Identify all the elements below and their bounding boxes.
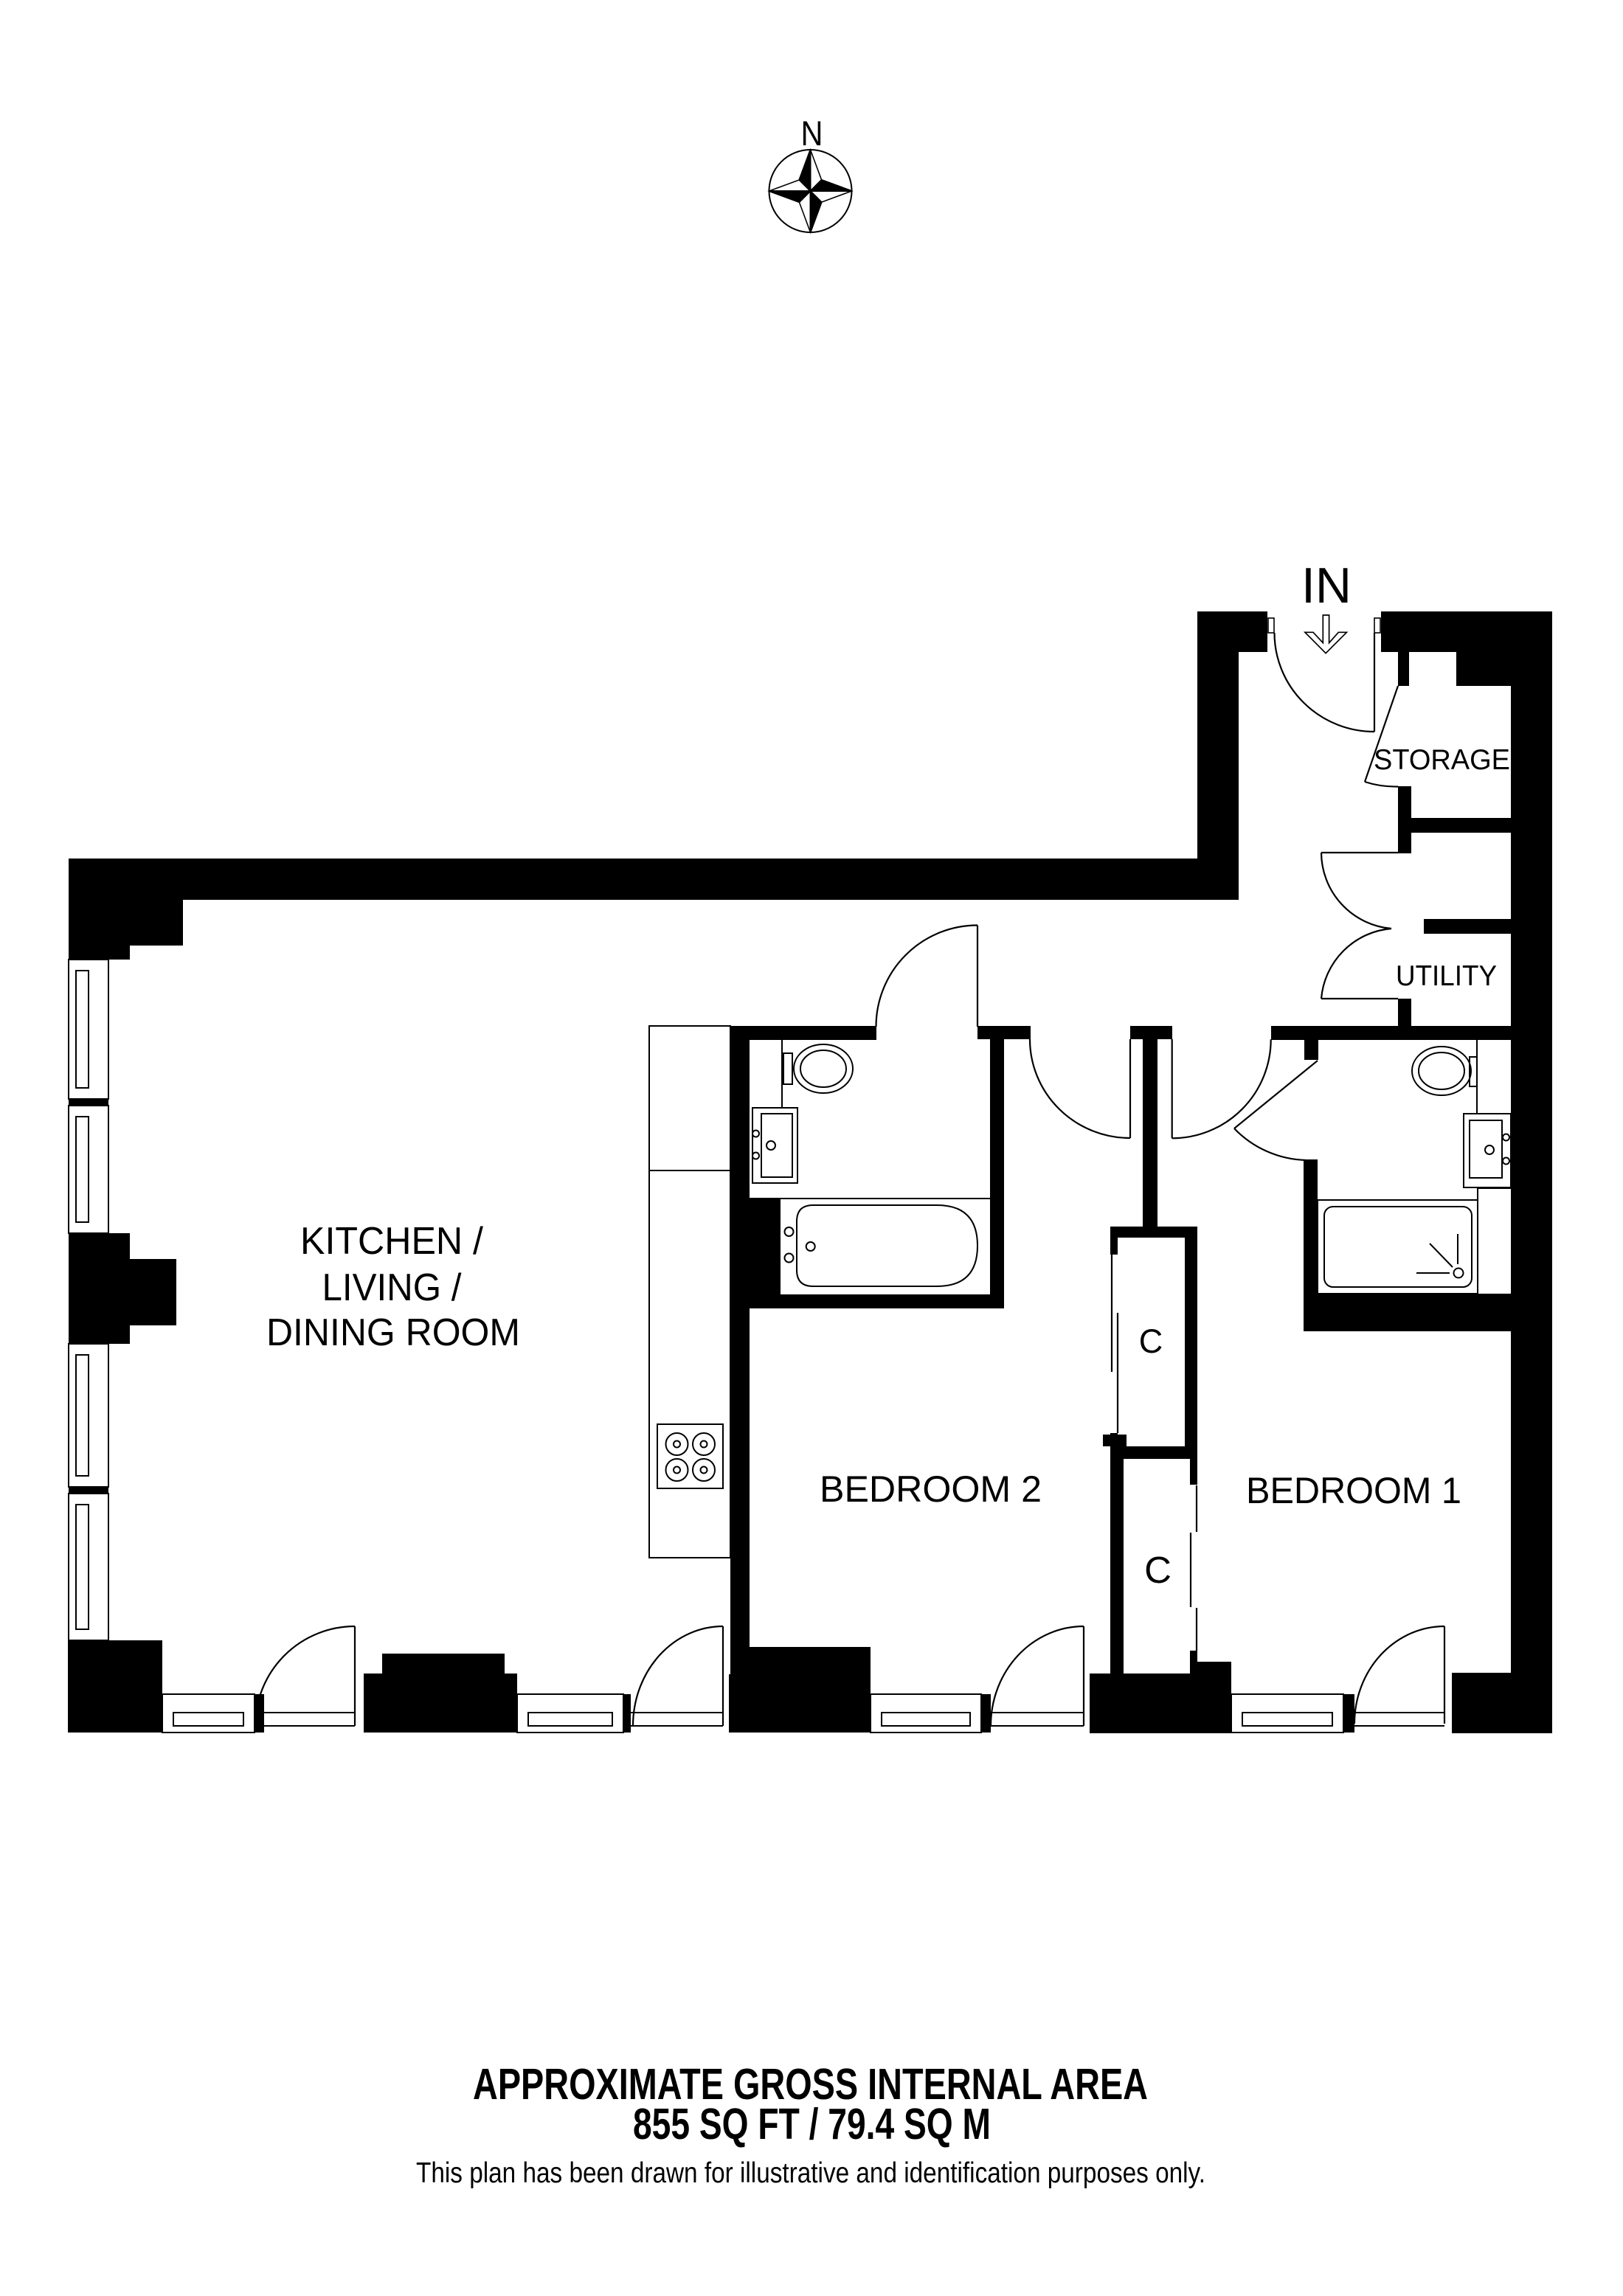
svg-text:BEDROOM 1: BEDROOM 1 <box>1246 1470 1461 1511</box>
svg-text:KITCHEN /: KITCHEN / <box>300 1219 484 1262</box>
svg-text:855 SQ FT / 79.4 SQ M: 855 SQ FT / 79.4 SQ M <box>633 2099 991 2148</box>
svg-text:IN: IN <box>1301 558 1352 614</box>
svg-text:LIVING /: LIVING / <box>322 1266 463 1308</box>
svg-text:STORAGE: STORAGE <box>1374 744 1510 776</box>
svg-text:N: N <box>801 114 823 153</box>
svg-text:BEDROOM 2: BEDROOM 2 <box>820 1468 1042 1510</box>
svg-text:This plan has been drawn for i: This plan has been drawn for illustrativ… <box>416 2157 1205 2189</box>
svg-text:C: C <box>1144 1549 1172 1591</box>
svg-text:DINING ROOM: DINING ROOM <box>266 1311 520 1353</box>
svg-text:UTILITY: UTILITY <box>1396 960 1497 992</box>
svg-text:C: C <box>1139 1322 1163 1360</box>
